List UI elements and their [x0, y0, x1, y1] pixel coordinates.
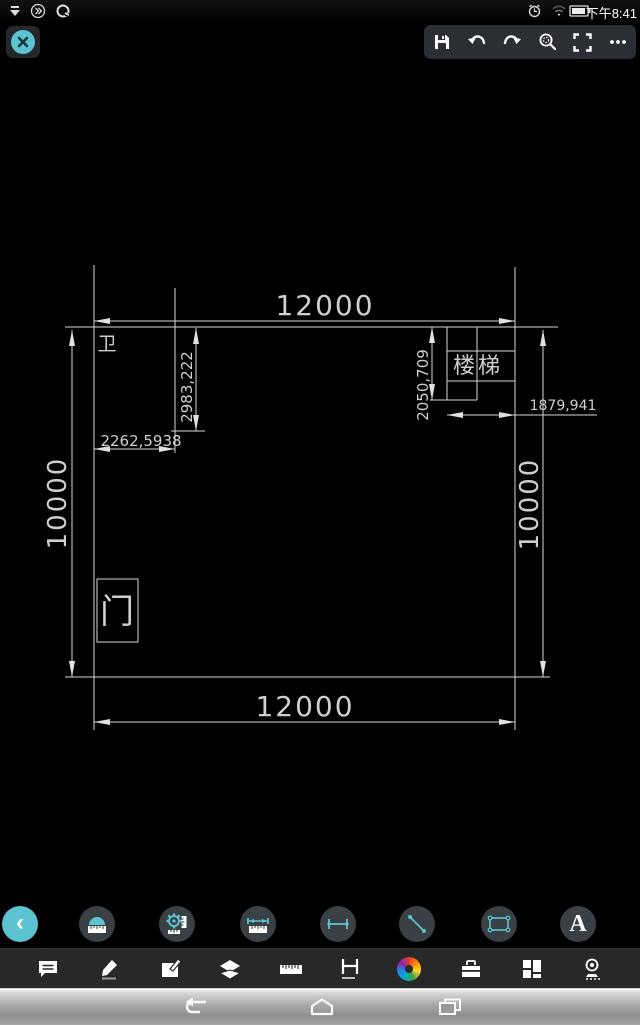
- blocks-icon: [520, 957, 544, 981]
- scale-settings-tool[interactable]: [159, 906, 195, 942]
- collapse-button[interactable]: ‹: [2, 906, 38, 942]
- ruler-icon: [278, 957, 304, 981]
- forward-circle-icon: [30, 3, 46, 19]
- toolbox-icon: [459, 957, 483, 981]
- redo-icon: [501, 32, 523, 52]
- save-button[interactable]: [427, 27, 457, 57]
- home-icon: [308, 995, 336, 1019]
- color-wheel-icon: [397, 957, 421, 981]
- wifi-icon: [551, 3, 567, 19]
- label-door: 门: [100, 592, 134, 632]
- dim-right-height: 10000: [515, 458, 545, 551]
- recents-icon: [436, 995, 464, 1019]
- dimension-ruler-icon: [245, 912, 271, 936]
- webcam-icon: [580, 957, 604, 981]
- toolbar-button-group: [424, 25, 636, 59]
- android-nav-bar: [0, 988, 640, 1025]
- zoom-button[interactable]: [533, 27, 563, 57]
- nav-back-button[interactable]: [181, 994, 209, 1020]
- dim-stair-height: 2050,709: [414, 349, 432, 421]
- back-icon: [181, 995, 209, 1019]
- floorplan-lines: [65, 265, 558, 730]
- save-icon: [432, 32, 452, 52]
- dimension-line-icon: [325, 912, 351, 936]
- fullscreen-button[interactable]: [568, 27, 598, 57]
- layers-icon: [218, 957, 242, 981]
- dim-top-width: 12000: [275, 289, 374, 322]
- status-bar: 下午8:41: [0, 0, 640, 22]
- gear-ruler-icon: [165, 912, 189, 936]
- status-clock: 下午8:41: [586, 3, 637, 22]
- pencil-tool[interactable]: [95, 954, 125, 984]
- close-button[interactable]: [6, 26, 40, 58]
- app-toolbar: [0, 22, 640, 66]
- text-tool[interactable]: A: [560, 906, 596, 942]
- edit-note-tool[interactable]: [155, 954, 185, 984]
- dim-bottom-width: 12000: [255, 690, 354, 723]
- redo-button[interactable]: [497, 27, 527, 57]
- edit-note-icon: [158, 957, 182, 981]
- download-icon: [8, 3, 22, 19]
- text-tool-icon: A: [569, 911, 586, 938]
- label-bathroom: 卫: [97, 333, 116, 355]
- blocks-tool[interactable]: [517, 954, 547, 984]
- dimension-arrows: [69, 318, 546, 725]
- rectangle-tool[interactable]: [481, 906, 517, 942]
- comment-icon: [36, 957, 60, 981]
- close-icon: [11, 30, 35, 54]
- arc-measure-tool[interactable]: [79, 906, 115, 942]
- pencil-icon: [98, 957, 122, 981]
- rectangle-icon: [486, 912, 512, 936]
- zoom-icon: [538, 32, 558, 52]
- alarm-icon: [527, 3, 542, 19]
- label-stairs: 楼梯: [453, 354, 503, 379]
- more-icon: [608, 32, 628, 52]
- dimension-line-tool[interactable]: [320, 906, 356, 942]
- line-tool[interactable]: [399, 906, 435, 942]
- color-wheel-tool[interactable]: [394, 954, 424, 984]
- more-button[interactable]: [603, 27, 633, 57]
- arc-ruler-icon: [85, 912, 109, 936]
- fullscreen-icon: [573, 33, 592, 52]
- nav-home-button[interactable]: [308, 994, 336, 1020]
- undo-button[interactable]: [462, 27, 492, 57]
- dimension-measure-tool[interactable]: [240, 906, 276, 942]
- dim-left-height: 10000: [43, 457, 73, 550]
- comment-tool[interactable]: [33, 954, 63, 984]
- undo-icon: [466, 32, 488, 52]
- tool-palette: ‹: [0, 904, 640, 946]
- chevron-left-icon: ‹: [16, 909, 24, 936]
- cad-canvas[interactable]: 12000 12000 10000 10000 2983,222 2262,59…: [0, 0, 640, 1024]
- layout-tool[interactable]: [335, 954, 365, 984]
- dim-bath-height: 2983,222: [178, 351, 196, 423]
- toolbox-tool[interactable]: [456, 954, 486, 984]
- line-icon: [405, 912, 429, 936]
- dim-stair-width: 1879,941: [530, 398, 597, 414]
- ruler-tool[interactable]: [276, 954, 306, 984]
- app-notification-icon: [55, 3, 71, 19]
- bottom-toolbar: [0, 948, 640, 989]
- layout-icon: [337, 956, 363, 982]
- nav-recents-button[interactable]: [436, 994, 464, 1020]
- webcam-tool[interactable]: [577, 954, 607, 984]
- layers-tool[interactable]: [215, 954, 245, 984]
- dim-bath-width: 2262,5938: [100, 432, 181, 450]
